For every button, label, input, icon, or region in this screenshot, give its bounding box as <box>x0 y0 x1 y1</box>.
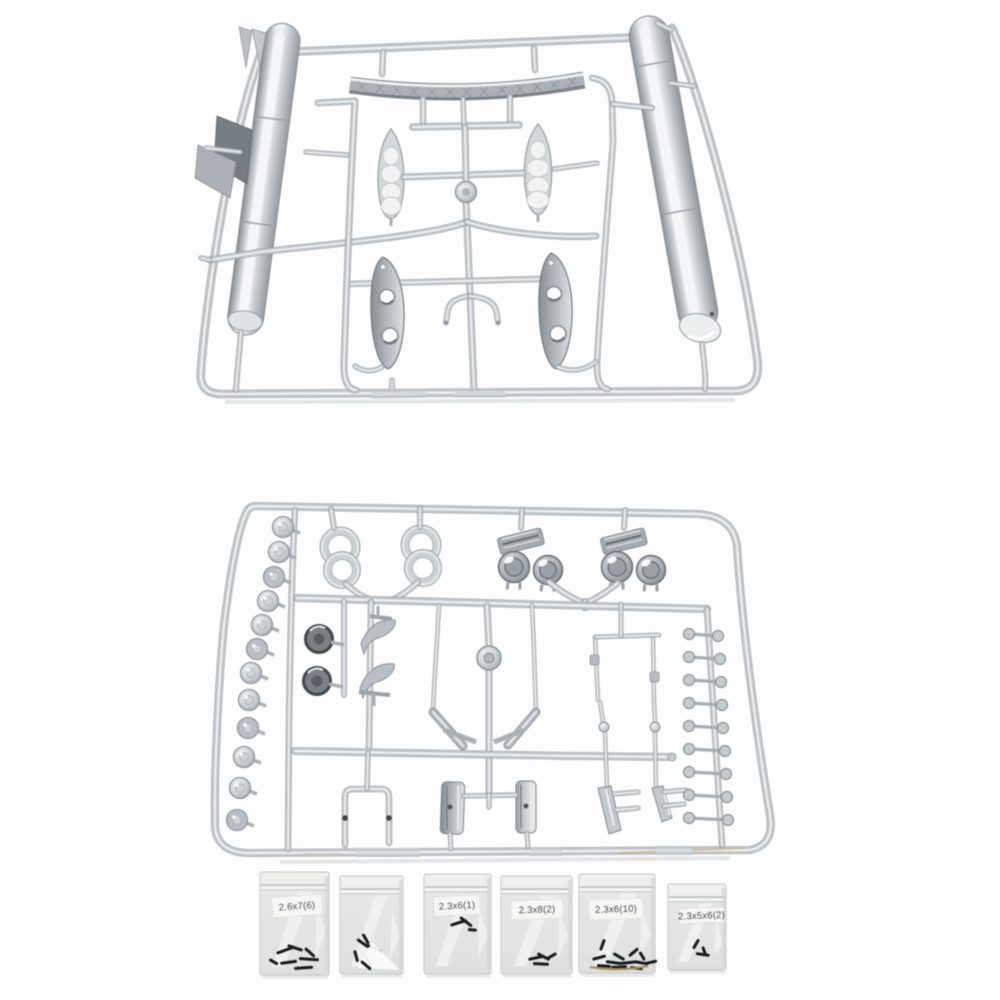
svg-text:2.3x6(10): 2.3x6(10) <box>595 903 637 915</box>
svg-text:2.3x6(1): 2.3x6(1) <box>439 900 476 913</box>
svg-text:2.3x8(2): 2.3x8(2) <box>519 904 556 916</box>
svg-text:2.3x5x6(2): 2.3x5x6(2) <box>678 910 725 923</box>
